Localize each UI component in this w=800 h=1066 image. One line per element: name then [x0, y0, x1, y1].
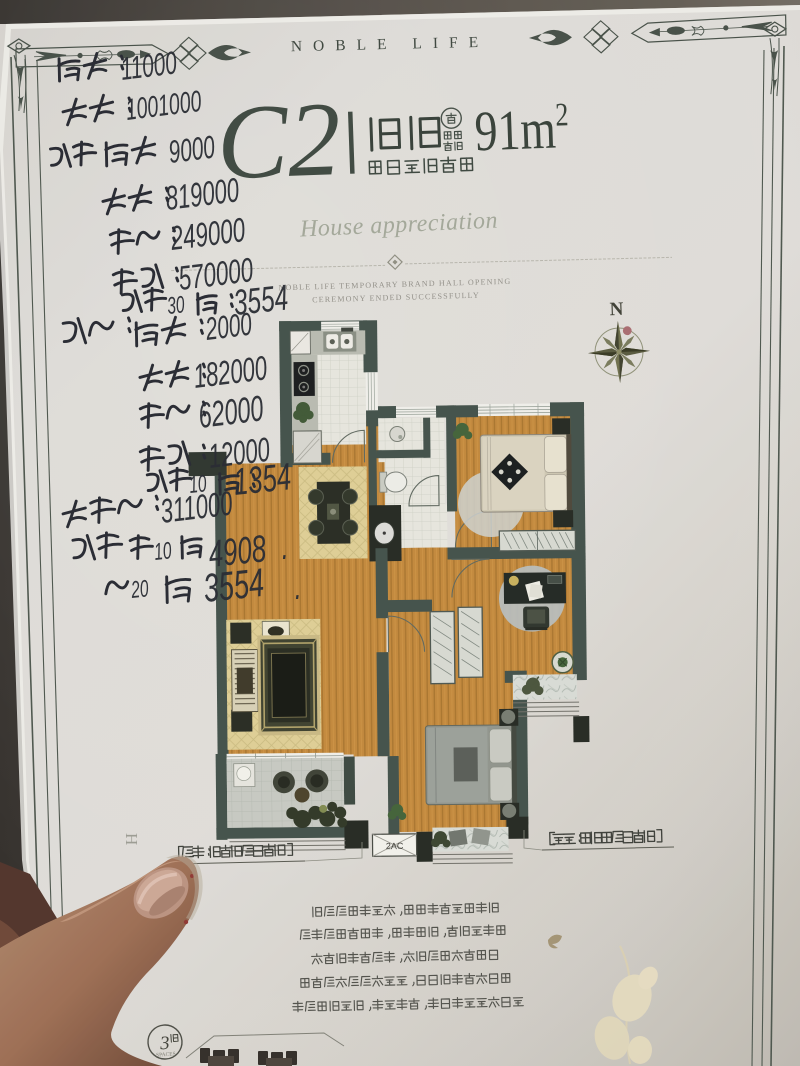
- svg-text:2AC: 2AC: [386, 841, 404, 851]
- svg-text:H: H: [122, 833, 141, 845]
- svg-text:11000: 11000: [119, 45, 179, 87]
- svg-text:2000: 2000: [203, 306, 254, 347]
- svg-text:20: 20: [129, 576, 150, 604]
- svg-text:9000: 9000: [167, 129, 217, 170]
- svg-text:30: 30: [166, 292, 187, 320]
- svg-text:.: .: [295, 568, 302, 607]
- svg-text:.: .: [282, 528, 289, 567]
- svg-text:N: N: [609, 299, 624, 320]
- svg-text:10: 10: [153, 538, 174, 566]
- svg-text:91m2: 91m2: [474, 96, 570, 163]
- svg-text:62000: 62000: [196, 389, 265, 436]
- svg-text:3554: 3554: [201, 561, 266, 612]
- svg-text:1354: 1354: [231, 455, 293, 503]
